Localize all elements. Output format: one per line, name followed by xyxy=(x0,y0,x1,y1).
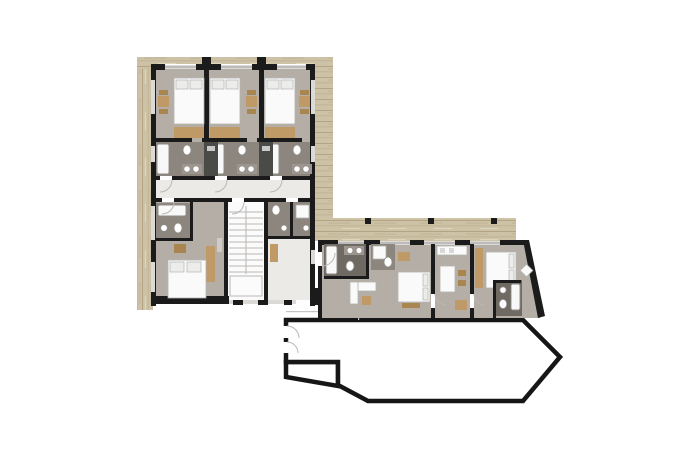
wall xyxy=(366,244,369,279)
table xyxy=(455,300,467,310)
deck-divider xyxy=(365,218,371,224)
shaft-vent xyxy=(207,146,215,151)
sink xyxy=(184,166,190,172)
sink xyxy=(281,225,287,231)
sink xyxy=(347,248,353,254)
wall xyxy=(233,300,243,305)
guest-room-block xyxy=(151,64,315,306)
wall xyxy=(493,280,496,318)
chair xyxy=(247,109,256,114)
wall xyxy=(500,240,527,245)
pillow xyxy=(423,274,428,286)
cabinet xyxy=(398,252,410,261)
bathtub xyxy=(511,284,520,310)
floor-plan-drawing xyxy=(0,0,700,467)
pillow xyxy=(212,80,224,89)
sink xyxy=(294,166,300,172)
corridor-floor xyxy=(155,180,311,198)
wall xyxy=(227,176,270,180)
sink xyxy=(239,166,245,172)
sink xyxy=(303,225,309,231)
table xyxy=(158,96,169,107)
door-gap xyxy=(431,294,435,308)
chair xyxy=(247,90,256,95)
window xyxy=(151,206,155,240)
wall xyxy=(312,138,314,142)
toilet xyxy=(346,261,354,271)
wall xyxy=(410,240,424,245)
sink xyxy=(248,166,254,172)
toilet xyxy=(384,257,392,267)
outline-main-polygon xyxy=(286,320,560,401)
wing-bathroom-1 xyxy=(324,244,369,279)
wardrobe xyxy=(210,127,240,138)
sofa xyxy=(350,282,358,304)
wall xyxy=(155,138,192,142)
pillow xyxy=(187,262,201,272)
door-gap xyxy=(283,342,290,353)
bathtub xyxy=(326,246,337,274)
toilet xyxy=(499,299,507,308)
pillow xyxy=(226,80,238,89)
floor-plan-page xyxy=(0,0,700,467)
apartment-wing xyxy=(318,240,545,318)
wall xyxy=(224,202,228,300)
outline-wedge xyxy=(286,362,338,386)
sink xyxy=(356,248,362,254)
wall xyxy=(264,202,268,300)
window xyxy=(311,146,315,162)
door-gap xyxy=(311,250,315,264)
chair xyxy=(159,109,168,114)
chair xyxy=(174,244,186,253)
wardrobe xyxy=(265,127,295,138)
wall xyxy=(202,138,247,142)
pillow xyxy=(170,262,184,272)
wall xyxy=(244,198,286,202)
toilet xyxy=(272,205,280,215)
wall xyxy=(257,138,302,142)
deck-divider xyxy=(491,218,497,224)
pillow xyxy=(176,80,188,89)
wall xyxy=(190,202,193,241)
cooktop xyxy=(440,248,445,253)
wall xyxy=(290,202,293,238)
sink xyxy=(303,166,309,172)
window xyxy=(151,146,155,162)
wall xyxy=(318,240,322,318)
wing-shower-room xyxy=(371,244,395,270)
wall xyxy=(174,198,232,202)
wardrobe xyxy=(174,127,204,138)
wall xyxy=(324,276,366,279)
wall xyxy=(282,176,314,180)
pillow xyxy=(423,288,428,300)
stool xyxy=(458,280,466,286)
door-gap xyxy=(283,326,290,338)
wall xyxy=(284,300,292,305)
deck-right-strip xyxy=(315,57,333,241)
sink xyxy=(500,287,506,293)
deck-left-strip xyxy=(137,57,153,310)
chair xyxy=(300,90,309,95)
wall xyxy=(151,198,162,202)
window xyxy=(151,80,155,114)
cabinet xyxy=(270,244,278,262)
stool xyxy=(458,270,466,276)
pillow xyxy=(509,254,514,268)
sink xyxy=(193,166,199,172)
wall xyxy=(252,64,277,70)
sink xyxy=(161,225,168,232)
door-gap xyxy=(470,294,474,308)
kitchen-island xyxy=(440,266,455,292)
wing-bathroom-2 xyxy=(493,280,522,318)
chair xyxy=(159,90,168,95)
bathtub xyxy=(157,144,169,174)
wall xyxy=(455,240,470,245)
shower xyxy=(373,246,386,259)
pillow xyxy=(267,80,279,89)
wall xyxy=(155,238,193,241)
bathroom-band-floor xyxy=(155,142,311,176)
wall xyxy=(258,300,268,305)
toilet xyxy=(293,145,301,155)
deck-divider xyxy=(428,218,434,224)
chair xyxy=(300,109,309,114)
coffee-table xyxy=(362,296,371,305)
window xyxy=(151,262,155,292)
shower xyxy=(296,205,309,218)
kitchen-sink xyxy=(449,248,454,253)
wall xyxy=(172,176,215,180)
toilet xyxy=(174,223,182,233)
wardrobe xyxy=(475,248,483,288)
pillow xyxy=(190,80,202,89)
deck-wing-strip xyxy=(315,218,516,241)
door-gap xyxy=(318,252,322,266)
table xyxy=(246,96,257,107)
wall xyxy=(298,198,314,202)
bench xyxy=(402,303,420,308)
wardrobe xyxy=(206,246,215,282)
wall xyxy=(151,176,160,180)
dimension-label xyxy=(217,238,222,252)
table xyxy=(299,96,310,107)
toilet xyxy=(183,145,191,155)
toilet xyxy=(238,145,246,155)
wall xyxy=(493,280,521,283)
pillow xyxy=(281,80,293,89)
window xyxy=(311,80,315,114)
shaft-vent xyxy=(262,146,270,151)
